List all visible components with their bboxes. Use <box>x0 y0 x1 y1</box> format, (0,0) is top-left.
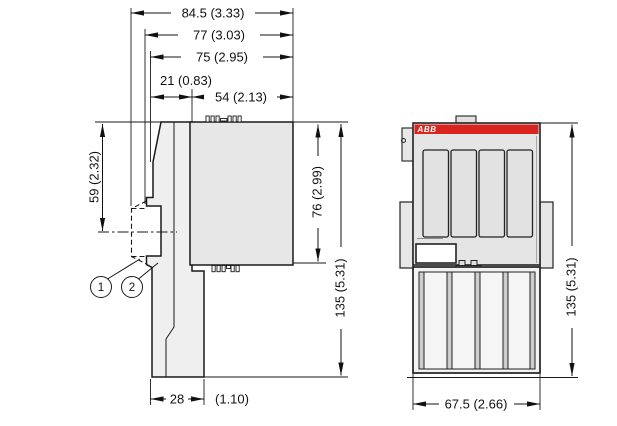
dim-terminal-height: 76 (2.99) <box>310 166 325 218</box>
slot-4 <box>507 150 533 237</box>
connector-teeth-top <box>206 116 241 122</box>
front-view: ABB <box>400 116 553 373</box>
abb-logo: ABB <box>417 125 437 134</box>
dimension-drawing: ABB <box>0 0 617 426</box>
din-rail-hidden <box>132 201 147 264</box>
dim-module-depth: 75 (2.95) <box>196 50 248 65</box>
callout-1-number: 1 <box>98 282 104 294</box>
din-tab-left <box>400 202 413 268</box>
din-tab-right <box>540 202 553 268</box>
label-window <box>416 244 456 263</box>
callout-2-number: 2 <box>129 282 135 294</box>
dim-height-front: 135 (5.31) <box>564 257 579 316</box>
dimension-drawing-page: ABB <box>0 0 617 426</box>
slot-2 <box>451 150 477 237</box>
dim-rear-depth: 21 (0.83) <box>160 73 212 88</box>
dim-total-depth: 84.5 (3.33) <box>182 6 245 21</box>
dim-front-width: 67.5 (2.66) <box>445 397 508 412</box>
top-tab <box>456 116 476 123</box>
dim-base-width-inch: (1.10) <box>215 392 249 407</box>
dim-terminal-depth: 54 (2.13) <box>215 90 267 105</box>
side-connector <box>402 128 413 161</box>
connector-teeth-bottom <box>212 266 239 272</box>
dim-rail-offset: 59 (2.32) <box>87 151 102 203</box>
dim-depth-rail: 77 (3.03) <box>193 28 245 43</box>
callout-1-leader <box>108 259 141 279</box>
side-view <box>98 116 293 377</box>
terminal-block-side <box>190 122 293 265</box>
dim-height-side: 135 (5.31) <box>333 258 348 317</box>
slot-1 <box>423 150 449 237</box>
dim-base-width: 28 <box>170 392 184 407</box>
slot-3 <box>479 150 505 237</box>
